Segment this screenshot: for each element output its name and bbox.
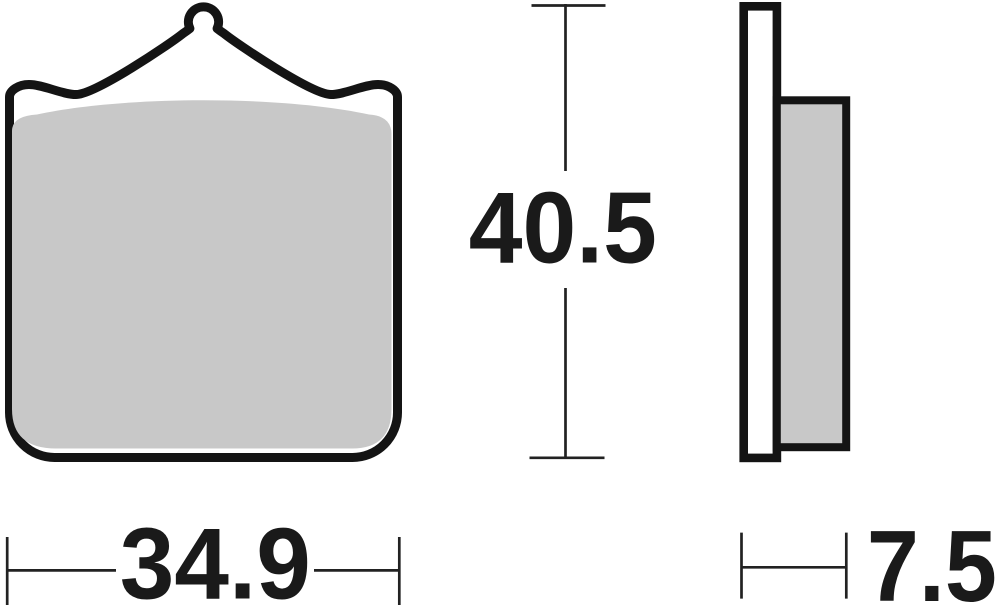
svg-text:34.9: 34.9 — [120, 509, 311, 610]
svg-text:7.5: 7.5 — [867, 511, 997, 610]
svg-text:40.5: 40.5 — [469, 172, 657, 284]
